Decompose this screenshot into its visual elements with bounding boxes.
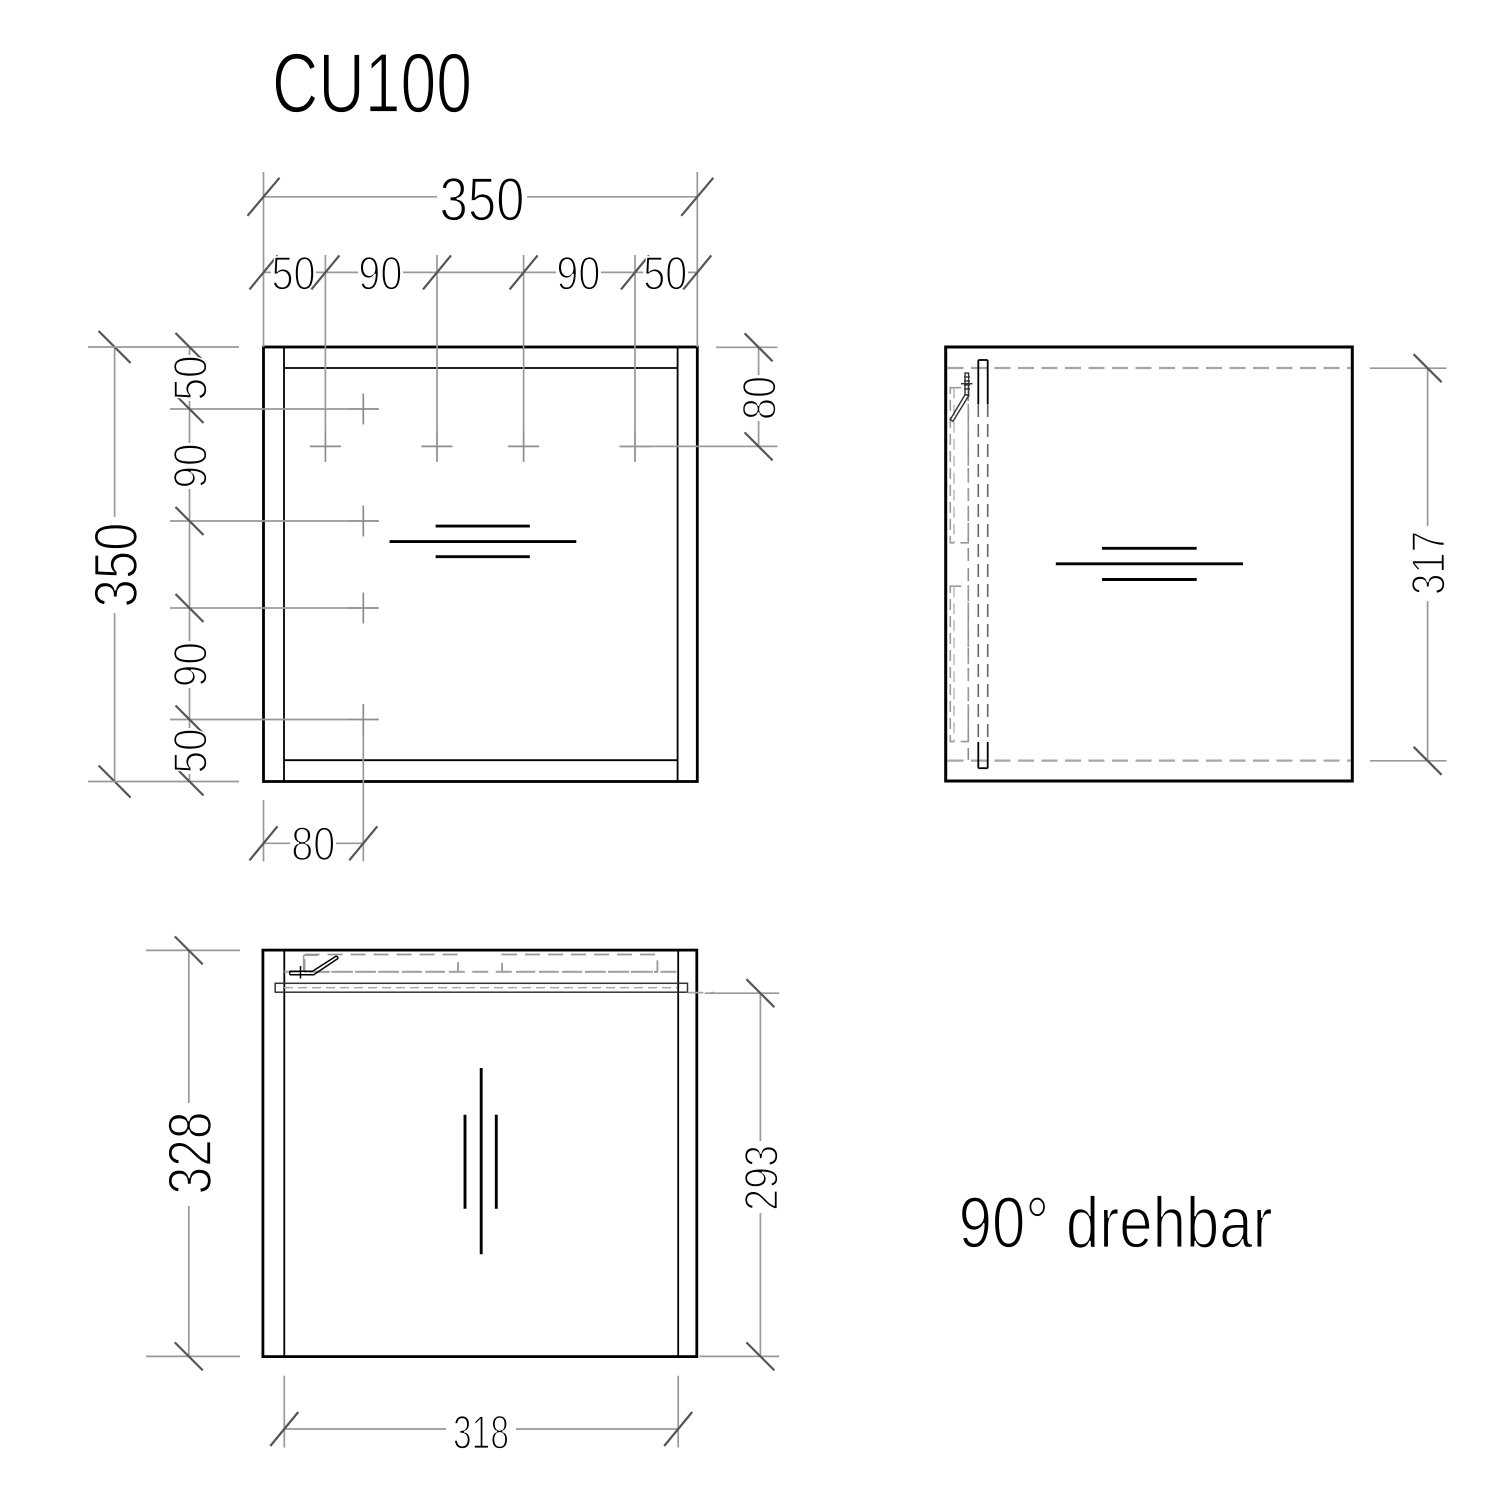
svg-text:90° drehbar: 90° drehbar [959, 1184, 1273, 1264]
svg-text:80: 80 [291, 817, 335, 870]
svg-text:328: 328 [156, 1112, 224, 1195]
svg-text:CU100: CU100 [272, 36, 472, 130]
svg-text:50: 50 [164, 356, 217, 401]
svg-text:50: 50 [643, 247, 687, 300]
svg-text:350: 350 [440, 166, 525, 234]
svg-text:90: 90 [164, 642, 217, 687]
svg-text:350: 350 [82, 523, 150, 608]
svg-text:90: 90 [358, 247, 402, 300]
svg-text:90: 90 [556, 247, 600, 300]
svg-text:80: 80 [733, 376, 786, 420]
svg-text:50: 50 [164, 729, 217, 774]
svg-text:317: 317 [1402, 531, 1455, 595]
svg-text:318: 318 [453, 1405, 509, 1458]
svg-text:90: 90 [164, 444, 217, 489]
svg-text:293: 293 [735, 1145, 788, 1211]
svg-text:50: 50 [272, 247, 316, 300]
